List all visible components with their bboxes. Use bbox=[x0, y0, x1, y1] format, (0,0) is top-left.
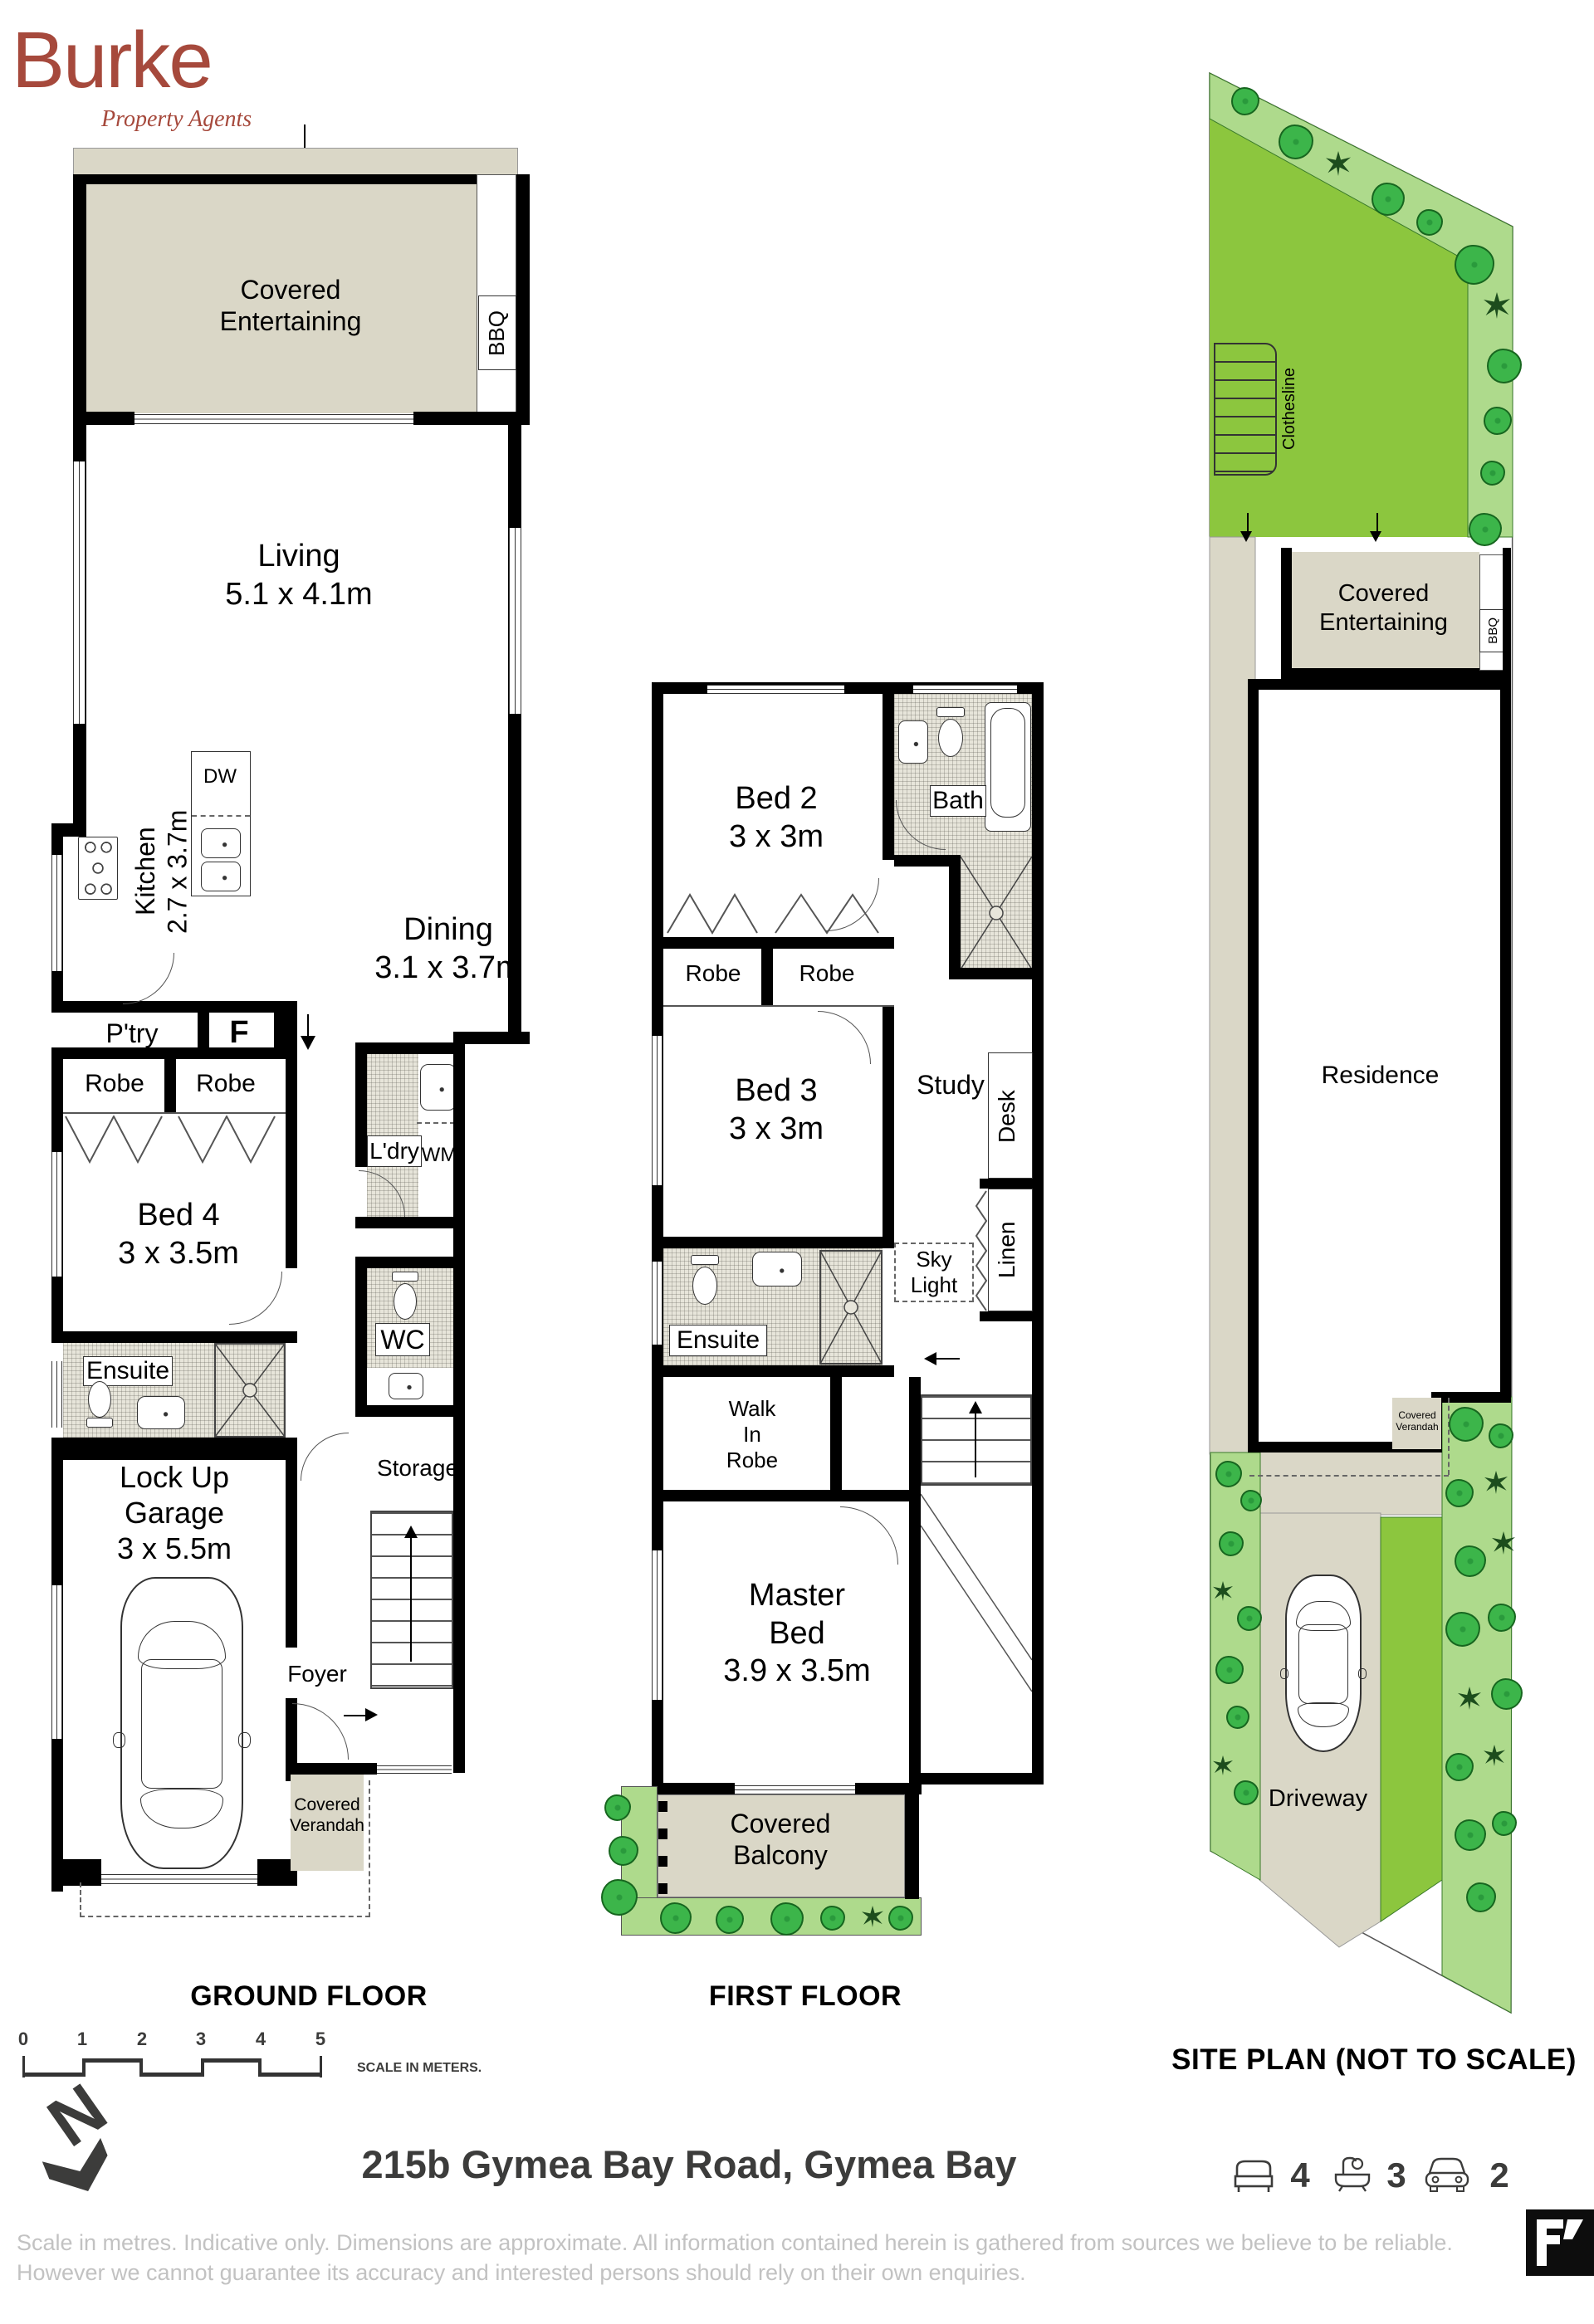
window bbox=[913, 685, 1017, 694]
robe-label: Robe bbox=[664, 959, 762, 988]
linen-label: Linen bbox=[993, 1197, 1028, 1303]
bed3-label: Bed 3 3 x 3m bbox=[689, 1072, 863, 1148]
shape bbox=[1235, 2176, 1272, 2186]
wall bbox=[1281, 668, 1507, 679]
window bbox=[73, 461, 86, 724]
kitchen-label: Kitchen 2.7 x 3.7m bbox=[130, 788, 191, 954]
car-icon bbox=[1423, 2155, 1471, 2195]
shape bbox=[990, 906, 1003, 920]
robe-label: Robe bbox=[65, 1069, 164, 1099]
bed2-label: Bed 2 3 x 3m bbox=[689, 780, 863, 856]
wall bbox=[830, 1377, 842, 1493]
scale-tick: 0 bbox=[16, 2029, 31, 2050]
shape bbox=[775, 895, 878, 933]
dashed-boundary bbox=[1249, 1475, 1449, 1477]
wall bbox=[658, 1828, 667, 1839]
shape bbox=[63, 1112, 286, 1114]
entry-arrow-icon bbox=[1240, 531, 1252, 542]
bbq-label: BBQ bbox=[478, 295, 516, 370]
shape bbox=[1433, 2177, 1439, 2183]
toilet bbox=[394, 1283, 417, 1320]
wall bbox=[73, 412, 134, 425]
wall bbox=[51, 1001, 286, 1013]
wall bbox=[286, 1763, 377, 1775]
wall bbox=[355, 1042, 367, 1167]
robe-label: Robe bbox=[178, 1069, 274, 1099]
dining-label: Dining 3.1 x 3.7m bbox=[365, 911, 531, 987]
toilet bbox=[936, 707, 965, 717]
shape bbox=[667, 895, 757, 933]
agency-logo-tagline: Property Agents bbox=[101, 106, 252, 133]
wall bbox=[1032, 682, 1044, 1784]
bath-count: 3 bbox=[1380, 2155, 1413, 2196]
toilet bbox=[88, 1381, 111, 1418]
shape bbox=[201, 2058, 262, 2063]
shape bbox=[1249, 1451, 1442, 1515]
window bbox=[51, 1361, 62, 1428]
shape bbox=[243, 1384, 257, 1397]
master-bed-label: Master Bed 3.9 x 3.5m bbox=[702, 1577, 892, 1691]
ensuite-label: Ensuite bbox=[669, 1325, 767, 1356]
wall bbox=[652, 1490, 921, 1501]
shape bbox=[844, 1301, 858, 1314]
window bbox=[707, 685, 844, 694]
bbq-bench bbox=[477, 174, 516, 413]
dashed-boundary bbox=[369, 1780, 370, 1917]
shape: BBQ bbox=[1486, 618, 1501, 644]
scale-tick: 5 bbox=[313, 2029, 328, 2050]
wall bbox=[73, 174, 86, 425]
scale-tick: 4 bbox=[253, 2029, 268, 2050]
car-graphic bbox=[120, 1577, 243, 1869]
stairs-up-arrow-icon bbox=[404, 1526, 418, 1538]
shape bbox=[921, 1526, 1032, 1692]
shape bbox=[258, 2058, 262, 2077]
garage-label: Lock Up Garage 3 x 5.5m bbox=[87, 1459, 262, 1567]
toilet bbox=[392, 1272, 418, 1282]
wall bbox=[909, 1377, 921, 1784]
wall bbox=[658, 1856, 667, 1867]
sink bbox=[201, 862, 241, 891]
shape bbox=[663, 1005, 894, 1007]
shape bbox=[1456, 2177, 1462, 2183]
laundry-tub bbox=[420, 1064, 457, 1111]
wall bbox=[980, 1179, 1044, 1189]
study-label: Study bbox=[905, 1069, 996, 1101]
ground-floor-title: GROUND FLOOR bbox=[143, 1980, 475, 2013]
dashed-boundary bbox=[192, 815, 250, 817]
arrow-stem bbox=[410, 1537, 412, 1662]
wall bbox=[274, 1013, 286, 1049]
window bbox=[51, 1585, 62, 1739]
residence-label: Residence bbox=[1308, 1061, 1453, 1091]
wall bbox=[80, 174, 477, 184]
shower bbox=[961, 857, 1032, 969]
shape bbox=[1358, 1668, 1367, 1679]
shape bbox=[141, 1659, 222, 1789]
wall bbox=[980, 1311, 1044, 1321]
property-address: 215b Gymea Bay Road, Gymea Bay bbox=[249, 2141, 1129, 2188]
bath-icon bbox=[1332, 2153, 1373, 2195]
shape bbox=[73, 148, 518, 176]
shape bbox=[1352, 2159, 1362, 2169]
shape bbox=[1336, 2175, 1369, 2186]
clothesline-label: Clothesline bbox=[1279, 347, 1301, 471]
arrow-stem bbox=[307, 1014, 309, 1036]
wall bbox=[909, 1773, 1044, 1784]
door-swing bbox=[840, 1506, 898, 1565]
wall bbox=[652, 1237, 894, 1248]
dw-label: DW bbox=[194, 765, 246, 789]
arrow-stem bbox=[936, 1358, 960, 1360]
wall bbox=[1281, 548, 1292, 679]
vanity-basin bbox=[752, 1252, 802, 1286]
car-count: 2 bbox=[1483, 2155, 1516, 2196]
wall bbox=[355, 1217, 465, 1228]
toilet bbox=[86, 1418, 113, 1428]
wall bbox=[51, 1047, 286, 1059]
wall bbox=[413, 412, 530, 425]
shape bbox=[201, 2058, 204, 2077]
shape bbox=[82, 2058, 143, 2063]
vanity-basin bbox=[137, 1396, 185, 1429]
wall bbox=[949, 855, 961, 979]
disclaimer-line-1: Scale in metres. Indicative only. Dimens… bbox=[17, 2229, 1528, 2256]
shape bbox=[178, 1116, 275, 1162]
shape bbox=[66, 1116, 162, 1162]
floorplan-sheet: Burke Property Agents BBQ Covered Entert… bbox=[0, 0, 1594, 2324]
wall bbox=[883, 694, 894, 860]
wall bbox=[658, 1801, 667, 1812]
dashed-boundary bbox=[80, 1882, 81, 1917]
storage-label: Storage bbox=[372, 1454, 463, 1482]
shape bbox=[1237, 2161, 1270, 2176]
first-floor-title: FIRST FLOOR bbox=[635, 1980, 975, 2013]
shape bbox=[1381, 1517, 1442, 1921]
wall bbox=[652, 1365, 894, 1377]
bed-count: 4 bbox=[1284, 2155, 1317, 2196]
laundry-label: L'dry bbox=[367, 1135, 422, 1167]
door-swing bbox=[301, 1433, 349, 1481]
wall bbox=[355, 1257, 367, 1417]
shape bbox=[1430, 2159, 1464, 2173]
agency-logo: Burke bbox=[12, 15, 212, 106]
bifold-doors bbox=[65, 1116, 163, 1164]
shape bbox=[1362, 2186, 1366, 2191]
wall bbox=[883, 1007, 894, 1237]
window bbox=[652, 1036, 663, 1185]
scale-tick: 3 bbox=[193, 2029, 208, 2050]
bifold-doors bbox=[667, 893, 760, 935]
wall bbox=[949, 968, 1044, 979]
site-verandah-label: Covered Verandah bbox=[1391, 1409, 1443, 1433]
walk-in-robe-label: Walk In Robe bbox=[702, 1396, 802, 1474]
dashed-boundary bbox=[80, 1916, 370, 1917]
shape bbox=[976, 1191, 986, 1311]
scale-tick: 1 bbox=[75, 2029, 90, 2050]
scale-units-label: SCALE IN METERS. bbox=[357, 2060, 540, 2076]
fridge-label: F bbox=[214, 1014, 264, 1052]
wall bbox=[51, 1859, 101, 1886]
living-label: Living 5.1 x 4.1m bbox=[212, 538, 386, 613]
shape bbox=[1280, 1668, 1288, 1679]
window bbox=[134, 414, 413, 424]
disclaimer-line-2: However we cannot guarantee its accuracy… bbox=[17, 2259, 1528, 2286]
window bbox=[101, 1874, 257, 1884]
wall bbox=[516, 174, 530, 425]
wall bbox=[198, 1013, 209, 1049]
door-swing bbox=[818, 1011, 871, 1064]
shape bbox=[1457, 2186, 1464, 2191]
wc-label: WC bbox=[375, 1323, 430, 1356]
wall bbox=[51, 1448, 297, 1460]
wall bbox=[652, 1783, 735, 1794]
bed-icon bbox=[1232, 2156, 1275, 2195]
entry-arrow-icon bbox=[1370, 531, 1381, 542]
toilet bbox=[691, 1255, 719, 1265]
hall-arrow-icon bbox=[301, 1036, 315, 1050]
site-plan-title: SITE PLAN (NOT TO SCALE) bbox=[1154, 2043, 1594, 2077]
driveway-label: Driveway bbox=[1254, 1784, 1382, 1814]
door-swing bbox=[229, 1272, 282, 1325]
arrow-stem bbox=[344, 1715, 365, 1716]
door-swing bbox=[292, 1703, 349, 1760]
wall bbox=[355, 1405, 465, 1417]
entry-arrow-icon bbox=[365, 1708, 378, 1721]
covered-entertaining-label: Covered Entertaining bbox=[183, 274, 398, 338]
door-swing bbox=[123, 953, 174, 1004]
site-covered-entertaining-label: Covered Entertaining bbox=[1298, 579, 1469, 637]
bifold-doors bbox=[775, 893, 879, 935]
bathtub-inner bbox=[990, 708, 1025, 818]
shape bbox=[113, 1732, 125, 1749]
stair-rail bbox=[921, 1486, 1032, 1793]
wall bbox=[1503, 548, 1511, 679]
verandah-label: Covered Verandah bbox=[287, 1794, 367, 1836]
floorplan-logo-icon bbox=[1526, 2209, 1594, 2276]
wall bbox=[164, 1059, 176, 1114]
shape bbox=[1339, 2186, 1342, 2191]
window bbox=[735, 1785, 855, 1794]
site-residence bbox=[1248, 679, 1511, 1403]
shape bbox=[921, 1494, 1032, 1660]
wall bbox=[658, 1883, 667, 1894]
clothesline bbox=[1214, 343, 1277, 476]
shape bbox=[141, 2073, 203, 2077]
arrow-stem bbox=[975, 1411, 976, 1477]
sink bbox=[201, 828, 241, 858]
robe-label: Robe bbox=[772, 959, 882, 988]
window bbox=[51, 855, 62, 971]
wall bbox=[761, 949, 773, 1007]
accordion-door bbox=[975, 1190, 988, 1311]
wall bbox=[286, 1448, 297, 1648]
shape: BBQ bbox=[484, 310, 510, 356]
wall bbox=[355, 1257, 465, 1268]
wall bbox=[355, 1042, 465, 1054]
shape bbox=[1298, 1624, 1349, 1704]
wall bbox=[663, 937, 894, 949]
wall bbox=[905, 1783, 919, 1899]
scale-tick: 2 bbox=[134, 2029, 149, 2050]
skylight-label: Sky Light bbox=[896, 1247, 972, 1298]
bed4-label: Bed 4 3 x 3.5m bbox=[91, 1197, 266, 1272]
window bbox=[51, 1152, 62, 1277]
basin bbox=[389, 1373, 423, 1399]
foyer-label: Foyer bbox=[282, 1660, 352, 1688]
window bbox=[652, 1550, 663, 1700]
shower bbox=[819, 1250, 883, 1365]
cooktop bbox=[78, 837, 118, 900]
balcony-label: Covered Balcony bbox=[672, 1808, 888, 1872]
wall bbox=[286, 1001, 297, 1268]
hall-arrow-icon bbox=[924, 1352, 936, 1365]
shower bbox=[214, 1343, 286, 1438]
dashed-boundary bbox=[1448, 1398, 1450, 1475]
window bbox=[509, 528, 521, 714]
toilet bbox=[938, 719, 963, 757]
wall bbox=[453, 1032, 530, 1044]
car-graphic bbox=[1285, 1575, 1362, 1752]
bifold-doors bbox=[178, 1116, 276, 1164]
wall bbox=[51, 1438, 297, 1449]
wall bbox=[51, 1331, 297, 1343]
shape bbox=[260, 2073, 321, 2077]
pantry-label: P'try bbox=[70, 1018, 194, 1049]
shape bbox=[139, 2058, 143, 2077]
shape bbox=[1430, 2186, 1437, 2191]
desk-label: Desk bbox=[993, 1062, 1028, 1170]
toilet bbox=[692, 1267, 717, 1305]
shape bbox=[238, 1732, 251, 1749]
basin bbox=[898, 720, 928, 764]
window bbox=[652, 1262, 663, 1345]
stairs-up-arrow-icon bbox=[969, 1401, 982, 1413]
